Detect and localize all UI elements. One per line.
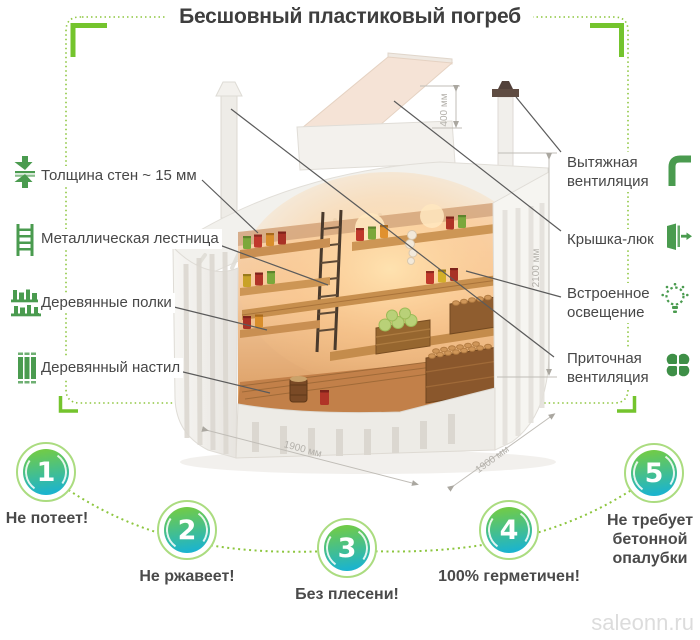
benefit-circle-4: 4: [479, 500, 541, 562]
label-exhaust-ventilation: Вытяжная вентиляция: [565, 152, 665, 192]
label-wall-thickness: Толщина стен ~ 15 мм: [38, 166, 200, 186]
benefit-circle-5: 5: [624, 443, 686, 505]
label-wooden-shelves: Деревянные полки: [38, 293, 175, 313]
benefit-label-5: Не требует бетонной опалубки: [601, 511, 699, 568]
dim-inner-height: 2100 мм: [531, 248, 542, 287]
cellar-right-wall: [493, 172, 549, 450]
benefit-circle-2: 2: [157, 500, 219, 562]
watermark: saleonn.ru: [591, 610, 694, 636]
label-hatch-cover: Крышка-люк: [565, 229, 675, 250]
label-metal-ladder: Металлическая лестница: [38, 229, 222, 249]
infographic-plastic-cellar: 400 мм 2100 мм 1900 мм 1900 мм Бесшовный…: [0, 0, 700, 640]
hatch-lid: [302, 53, 452, 132]
benefit-label-2: Не ржавеет!: [137, 567, 237, 586]
benefit-circle-3: 3: [317, 518, 379, 580]
benefit-circle-1: 1: [16, 442, 78, 504]
benefit-label-1: Не потеет!: [2, 509, 92, 528]
barrel: [290, 376, 307, 402]
page-title: Бесшовный пластиковый погреб: [167, 5, 533, 29]
label-supply-ventilation: Приточная вентиляция: [565, 348, 665, 388]
dim-collar-height: 400 мм: [439, 93, 450, 126]
label-built-in-lighting: Встроенное освещение: [565, 283, 665, 323]
benefit-label-4: 100% герметичен!: [424, 567, 594, 586]
label-wooden-flooring: Деревянный настил: [38, 358, 183, 378]
floor-jar: [320, 390, 329, 405]
cellar-left-wall: [173, 247, 238, 458]
benefit-label-3: Без плесени!: [295, 585, 399, 604]
